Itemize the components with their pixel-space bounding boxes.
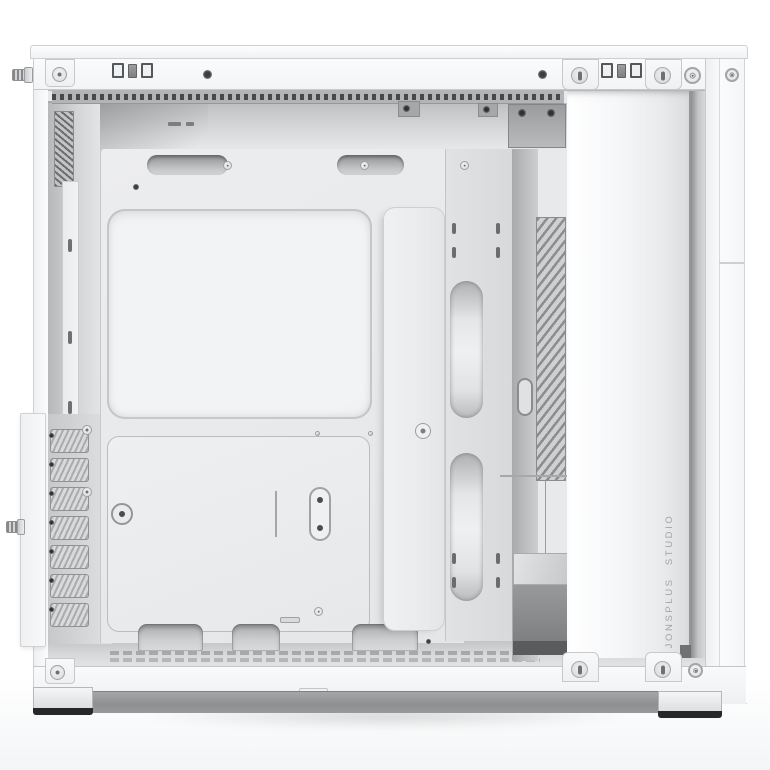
latch-cutouts [112,63,153,78]
screw-center [421,429,426,434]
top-panel-lip [30,45,748,59]
screw-dot [317,525,323,531]
right-frame [705,59,746,703]
slot-screw [49,433,54,438]
screw-hole [538,70,547,79]
tie-slot [452,553,456,564]
standoff-screw [360,161,369,170]
tie-slot [452,223,456,234]
front-vent-slats [536,217,566,481]
case-interior: JONSPLUS STUDIO [48,90,705,666]
side-panel-thumbscrew-cap [17,519,25,535]
channel-cutout [450,281,483,418]
rail-slot [68,239,72,252]
tiny-hole [315,431,320,436]
thumbscrew [684,67,701,84]
small-slot [280,617,300,623]
expansion-slot-cover [50,516,89,540]
thumbscrew [688,663,703,678]
case-foot-pad [33,708,93,715]
tie-slot [452,577,456,588]
shelf-line [500,475,568,477]
case-foot [33,687,93,710]
tab-screw [571,661,588,678]
lower-tray-panel [107,436,370,632]
screw-hole [203,70,212,79]
tie-slot [452,247,456,258]
expansion-slot-cover [50,603,89,627]
small-vent-dash [186,122,194,126]
cable-cover-bar [383,207,445,631]
tie-slot [496,247,500,258]
latch-cutout [141,63,153,78]
slot-screw [49,607,54,612]
floor-vent-row [110,651,540,655]
bracket-screw [547,109,555,117]
slot-screw [49,549,54,554]
cable-grommet [147,155,228,175]
bracket-screw [483,106,490,113]
screw-slot [661,665,665,674]
screw-hole [133,184,139,190]
cable-grommet [337,155,404,175]
cpu-cutout-panel [107,209,372,419]
circled-standoff [111,503,133,525]
right-frame-seam [719,59,720,703]
bottom-cable-cutout [232,624,280,651]
bottom-skirt [92,691,660,713]
standoff-screw [314,607,323,616]
rail-slot [68,331,72,344]
psu-bracket-base [513,641,568,655]
standoff-screw [82,487,92,497]
tie-slot [496,553,500,564]
side-panel-thumbscrew-cap [24,67,33,83]
latch-cutout [617,64,626,78]
expansion-slot-cover [50,574,89,598]
slot-screw [49,578,54,583]
latch-cutout [128,64,137,78]
bracket-screw [403,105,410,112]
screw-slot [578,665,582,674]
corner-screw [52,67,67,82]
tab-screw [654,661,671,678]
rear-vent-slats [54,111,74,187]
expansion-slot-cover [50,545,89,569]
standoff-screw [82,425,92,435]
screw-hole [426,639,431,644]
standoff-screw [460,161,469,170]
standoff-screw [223,161,232,170]
thumbscrew [725,68,739,82]
expansion-slot-cover [50,458,89,482]
tab-screw [571,67,588,84]
top-bracket [508,104,566,148]
floor-vent-row [110,658,540,662]
rail-slot [68,401,72,414]
case-foot [658,691,722,713]
small-vent-dash [168,122,181,126]
stadium-screw-slot [309,487,331,541]
screw-center [119,511,125,517]
psu-bracket-top [513,553,568,585]
bracket-screw [518,109,526,117]
divider-line [545,481,546,553]
bar-thumbscrew [415,423,431,439]
case-foot-pad [658,711,722,718]
slot-screw [49,491,54,496]
product-photo-pc-case: JONSPLUS STUDIO [0,0,770,770]
slot-screw [49,520,54,525]
right-frame-seam [705,59,706,703]
latch-cutout [112,63,124,78]
latch-cutouts [601,63,642,78]
front-panel-brand-text: JONSPLUS STUDIO [663,511,677,651]
recess-slot [517,378,533,416]
slot-screw [49,462,54,467]
right-frame-edge-highlight [744,59,747,703]
tiny-hole [368,431,373,436]
front-groove [691,91,705,658]
bottom-cable-cutout [138,624,203,651]
tab-screw [654,67,671,84]
psu-bracket-front [513,585,568,641]
corner-screw [50,665,65,680]
screw-slot [661,71,665,80]
right-frame-horizontal-seam [719,262,745,264]
latch-cutout [630,63,642,78]
top-vent-holes [52,94,564,100]
rear-glass-rail [62,181,79,421]
tie-slot [496,223,500,234]
tie-slot [496,577,500,588]
thin-slot [275,491,277,537]
latch-cutout [601,63,613,78]
screw-slot [578,71,582,80]
screw-dot [317,497,323,503]
